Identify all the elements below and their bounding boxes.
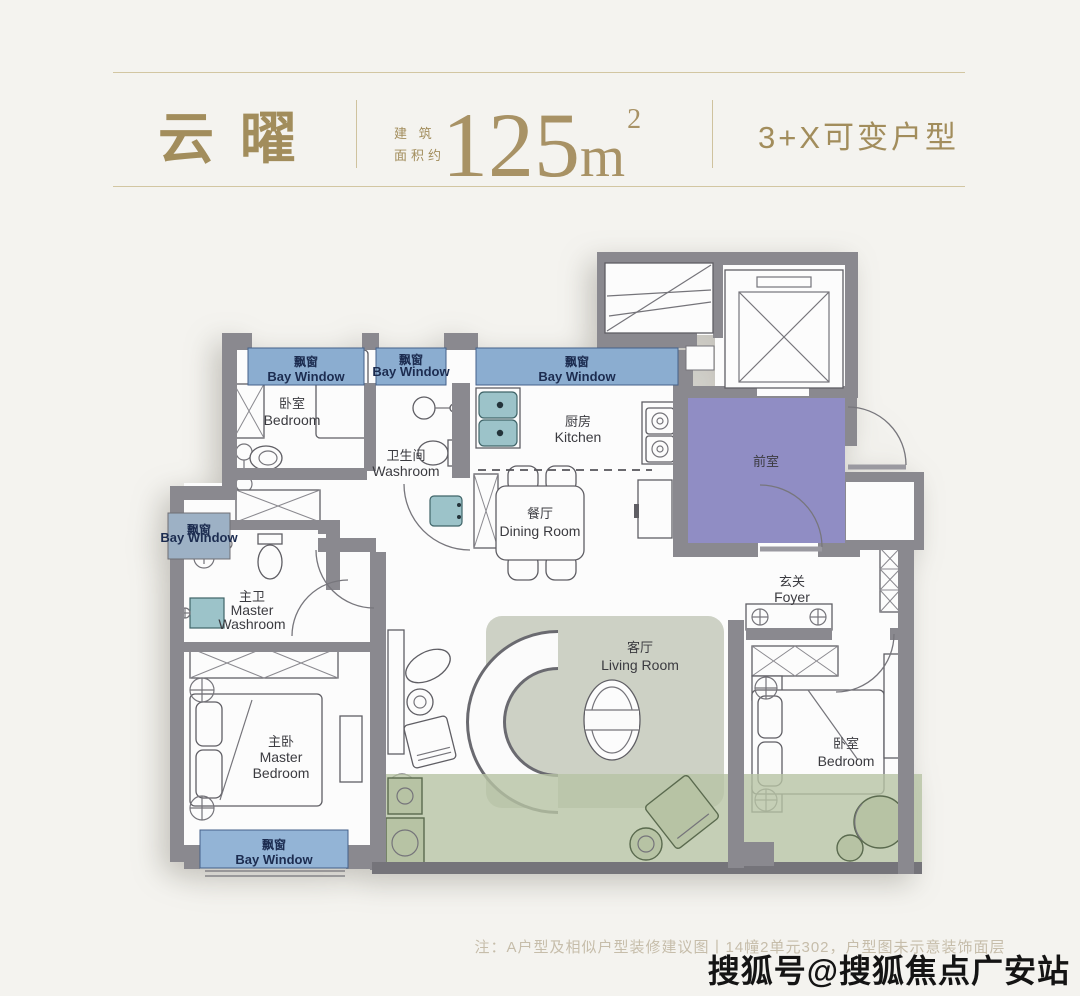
washroom-label-en: Washroom <box>372 463 439 479</box>
floorplan-group: 飘窗 Bay Window 飘窗 Bay Window 飘窗 Bay Windo… <box>160 252 924 876</box>
elevator <box>725 270 843 388</box>
floorplan-page: 云曜 建 筑 面积约 125m2 3+X可变户型 <box>0 0 1080 996</box>
front-room-zone <box>688 398 845 543</box>
front-room-label: 前室 <box>753 454 779 469</box>
master-bedroom-label-zh: 主卧 <box>268 734 294 749</box>
foyer-label-zh: 玄关 <box>779 574 805 589</box>
bay3-label-en: Bay Window <box>538 369 616 384</box>
bay5-label-en: Bay Window <box>160 530 238 545</box>
bay4-label-en: Bay Window <box>235 852 313 867</box>
floorplan-drawing: 飘窗 Bay Window 飘窗 Bay Window 飘窗 Bay Windo… <box>0 0 1080 996</box>
kitchen-label-zh: 厨房 <box>565 414 591 429</box>
bay3-label-zh: 飘窗 <box>565 354 589 369</box>
bay2-label-en: Bay Window <box>372 364 450 379</box>
bedroom-top-label-zh: 卧室 <box>279 396 305 411</box>
bedroom-top-label-en: Bedroom <box>264 412 321 428</box>
living-room-label-en: Living Room <box>601 657 679 673</box>
dining-label-en: Dining Room <box>500 523 581 539</box>
bedroom-right-label-en: Bedroom <box>818 753 875 769</box>
watermark: 搜狐号@搜狐焦点广安站 <box>560 946 1070 992</box>
foyer-label-en: Foyer <box>774 589 810 605</box>
stairwell <box>605 263 713 333</box>
master-bedroom-label-en2: Bedroom <box>253 765 310 781</box>
washroom-label-zh: 卫生间 <box>386 448 425 463</box>
living-room-label-zh: 客厅 <box>627 640 653 655</box>
dining-label-zh: 餐厅 <box>527 506 553 521</box>
master-washroom-label-en2: Washroom <box>218 616 285 632</box>
bay4-label-zh: 飘窗 <box>262 837 286 852</box>
bay1-label-zh: 飘窗 <box>294 354 318 369</box>
kitchen-label-en: Kitchen <box>555 429 602 445</box>
master-bedroom-label-en1: Master <box>260 749 303 765</box>
bay1-label-en: Bay Window <box>267 369 345 384</box>
bedroom-right-label-zh: 卧室 <box>833 736 859 751</box>
